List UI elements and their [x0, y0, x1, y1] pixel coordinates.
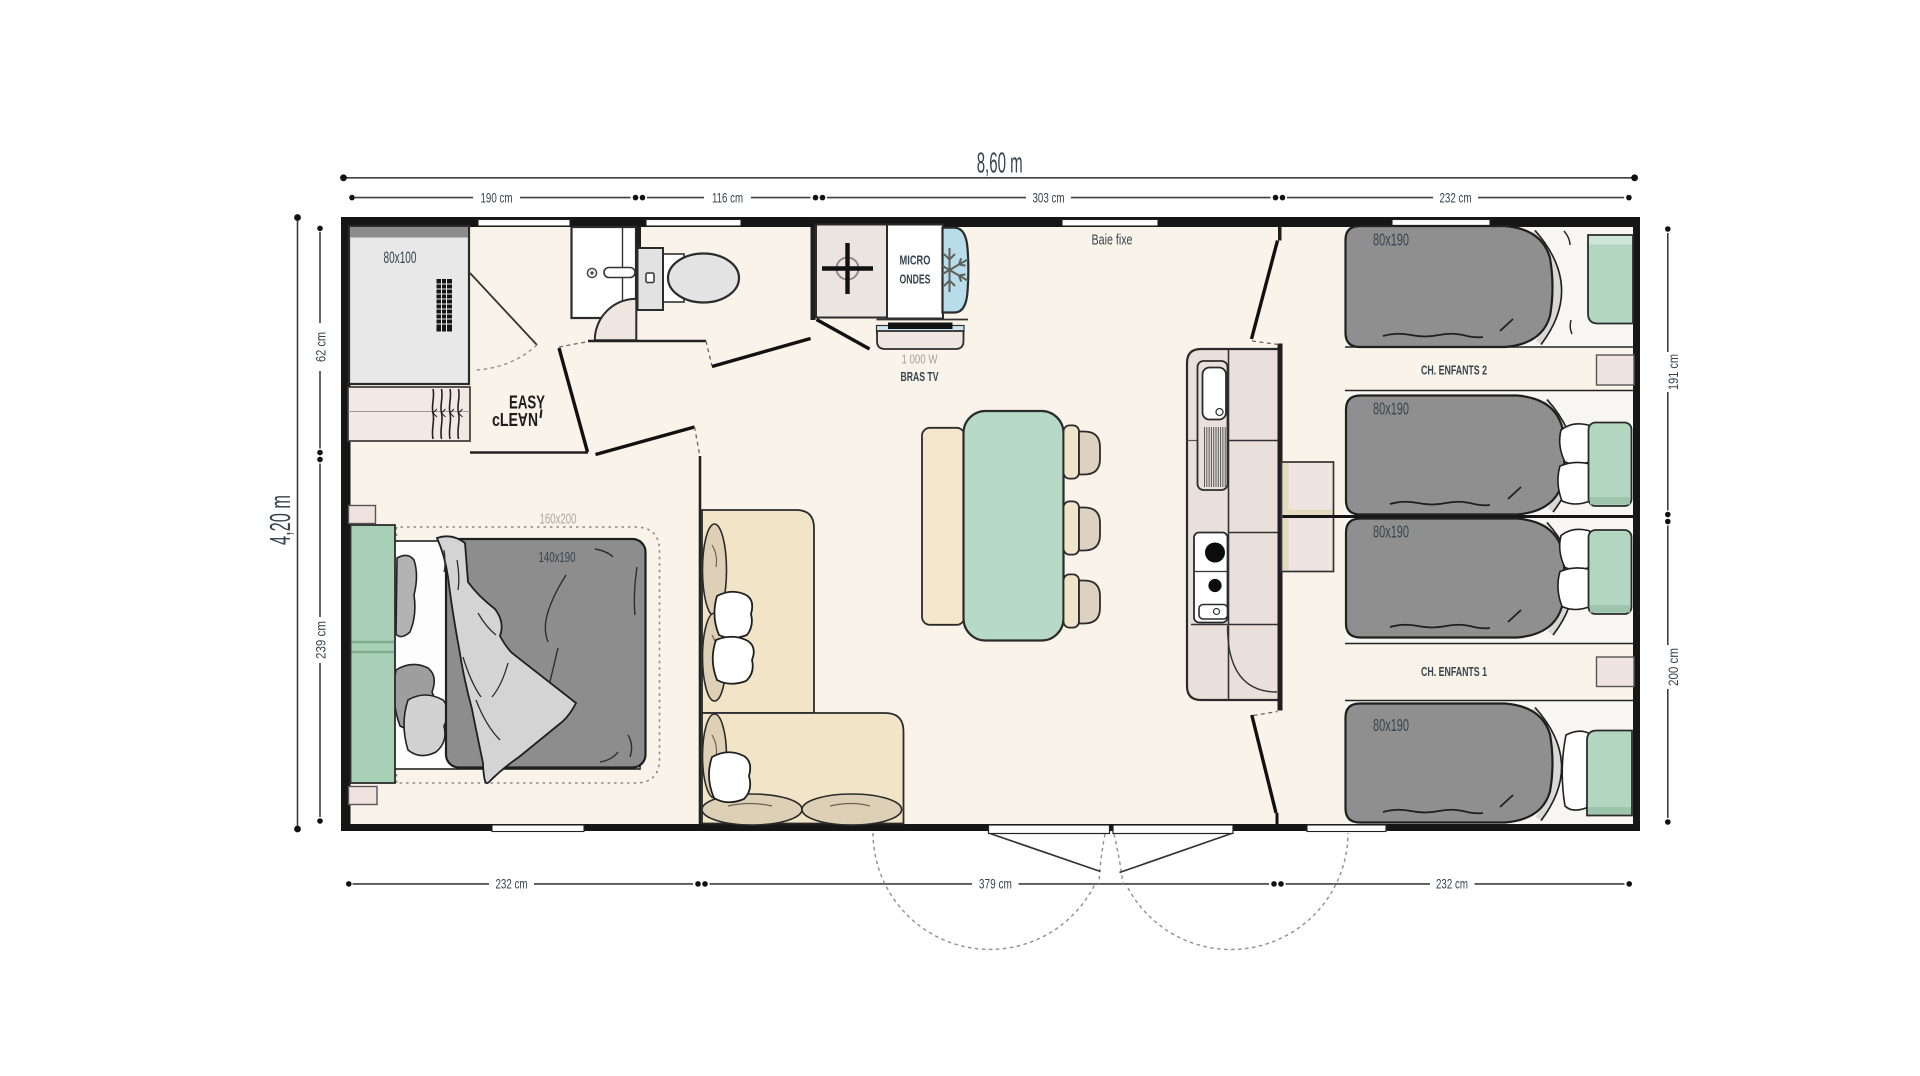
svg-text:80x190: 80x190	[1373, 522, 1409, 542]
svg-text:8,60 m: 8,60 m	[977, 148, 1023, 180]
svg-text:4,20 m: 4,20 m	[265, 495, 297, 545]
svg-text:379 cm: 379 cm	[979, 876, 1012, 892]
svg-text:cLE: cLE	[492, 410, 518, 430]
svg-text:191 cm: 191 cm	[1665, 354, 1681, 390]
svg-text:232 cm: 232 cm	[496, 876, 528, 892]
svg-text:CH. ENFANTS 1: CH. ENFANTS 1	[1421, 665, 1487, 679]
svg-text:80x100: 80x100	[384, 249, 417, 267]
svg-text:239 cm: 239 cm	[313, 621, 329, 659]
svg-text:80x190: 80x190	[1373, 399, 1409, 419]
svg-text:80x190: 80x190	[1373, 230, 1409, 250]
svg-text:80x190: 80x190	[1373, 715, 1409, 735]
svg-text:140x190: 140x190	[539, 550, 576, 566]
svg-text:1 000 W: 1 000 W	[902, 352, 939, 367]
svg-text:303 cm: 303 cm	[1033, 189, 1065, 205]
svg-text:MICRO: MICRO	[900, 253, 931, 268]
svg-text:N: N	[528, 410, 538, 430]
svg-text:160x200: 160x200	[540, 512, 577, 528]
svg-text:190 cm: 190 cm	[481, 189, 513, 205]
svg-text:200 cm: 200 cm	[1665, 648, 1681, 686]
svg-text:116 cm: 116 cm	[712, 189, 743, 205]
svg-text:ONDES: ONDES	[900, 272, 931, 287]
svg-text:62 cm: 62 cm	[313, 332, 329, 362]
svg-text:232 cm: 232 cm	[1440, 189, 1472, 205]
svg-text:Baie fixe: Baie fixe	[1092, 232, 1133, 249]
svg-text:CH. ENFANTS 2: CH. ENFANTS 2	[1421, 364, 1487, 378]
svg-text:BRAS TV: BRAS TV	[901, 369, 939, 384]
svg-text:A: A	[518, 409, 528, 429]
svg-text:232 cm: 232 cm	[1436, 876, 1468, 892]
